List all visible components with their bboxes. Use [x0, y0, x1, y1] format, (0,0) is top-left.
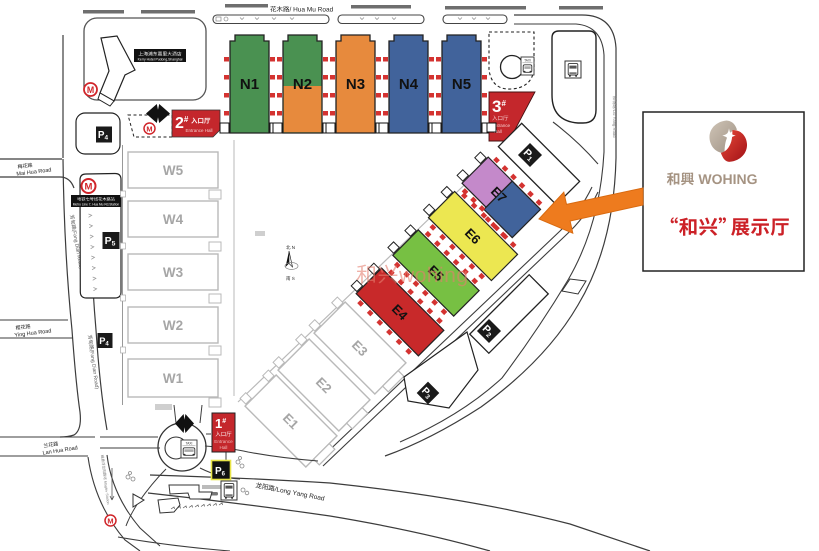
svg-text:Kerry Hotel Pudong,Shanghai: Kerry Hotel Pudong,Shanghai: [138, 58, 183, 62]
svg-text:N4: N4: [399, 76, 419, 93]
svg-text:Entrance: Entrance: [214, 439, 233, 444]
svg-text:W4: W4: [163, 212, 184, 227]
svg-text:N1: N1: [240, 76, 259, 93]
svg-text:Entrance Hall: Entrance Hall: [185, 128, 212, 133]
svg-text:N5: N5: [452, 76, 471, 93]
svg-text:M: M: [107, 516, 113, 525]
svg-text:W1: W1: [163, 371, 184, 386]
svg-text:W2: W2: [163, 318, 183, 333]
svg-text:W3: W3: [163, 265, 184, 280]
svg-text:N2: N2: [293, 76, 312, 93]
svg-text:TAXI: TAXI: [186, 442, 193, 446]
svg-text:W5: W5: [163, 163, 184, 178]
svg-text:M: M: [146, 124, 152, 133]
svg-text:Metro Line 7, Hua Mu Rd.Statio: Metro Line 7, Hua Mu Rd.Station: [73, 203, 120, 207]
svg-text:M: M: [85, 182, 93, 193]
svg-text:M: M: [87, 85, 94, 95]
svg-text:TAXI: TAXI: [524, 59, 531, 63]
svg-text:N3: N3: [346, 76, 365, 93]
svg-text:Hall: Hall: [220, 445, 228, 450]
